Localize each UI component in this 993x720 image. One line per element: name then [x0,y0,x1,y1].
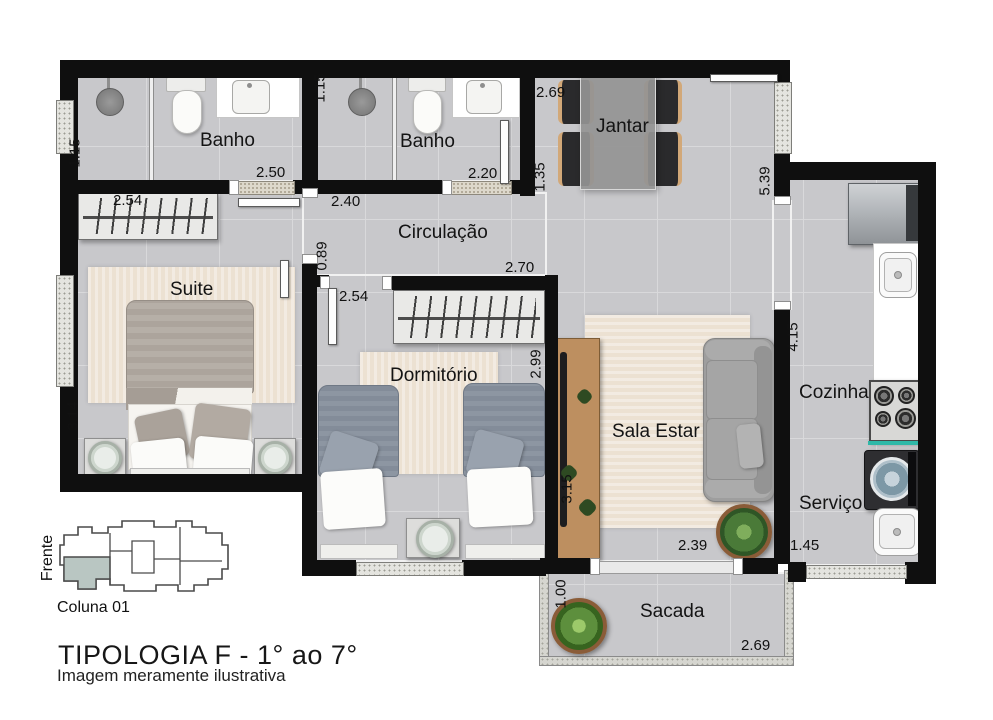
suite-closet-hangers [78,192,218,240]
room-label-servico: Serviço [799,493,862,515]
suite-clock-left [88,441,122,475]
sofa-lumbar-pillow [736,423,764,469]
window-jantar-right [774,82,792,154]
room-label-jantar: Jantar [596,116,649,138]
room-label-banho2: Banho [400,131,455,153]
door-leaf-suite [280,260,289,298]
door-leaf-banho1 [238,198,300,207]
wall-suite-dorm-divider [302,262,317,576]
wall-dorm-bottom-a [302,560,356,576]
jamb-dorm-door-right [382,276,392,290]
room-label-circulacao: Circulação [398,222,488,244]
keyplan-building-outline [58,517,230,601]
dorm-bed-left-base [320,544,398,559]
sacada-wall-bottom [539,656,794,666]
dim-suite-depth: 3.14 [65,401,82,430]
window-dorm-bottom [356,562,464,576]
jamb-sacada-door-right [733,558,743,575]
dim-sacada-depth: 1.00 [553,579,570,608]
stove-burner-3 [875,411,891,427]
dorm-bed-left-pillow-white [320,468,386,530]
suite-clock-right [258,441,292,475]
window-suite-left [56,275,74,387]
wall-kitchen-top [774,162,936,180]
shower-screen-2 [392,78,397,180]
sala-plant [716,504,772,560]
vanity-faucet-1 [247,83,252,88]
wall-suite-bottom [60,474,317,492]
jamb-banho2-left [442,180,452,195]
dim-suite-closet: 2.54 [113,192,142,209]
door-leaf-banho2 [500,120,509,184]
keyplan-column-label: Coluna 01 [57,599,130,617]
jamb-sacada-door-left [590,558,600,575]
sacada-wall-right [784,570,794,664]
room-label-sala-estar: Sala Estar [612,421,700,443]
dim-banho1-width: 2.50 [256,164,285,181]
stove-burner-1 [874,386,894,406]
dim-dorm-width: 2.70 [505,259,534,276]
shower-head-2 [348,88,376,116]
laundry-tank-drain [893,528,901,536]
wall-servico-bottom-a [788,562,806,582]
stove-burner-4 [895,408,916,429]
dim-sala-rack: 3.15 [559,474,576,503]
sacada-glass-door [598,561,735,574]
counter-accent-strip [868,441,920,445]
room-label-banho1: Banho [200,130,255,152]
dorm-bed-right-base [465,544,545,559]
keyplan-highlight-unit [64,557,110,589]
wall-banho1-bottom-a [60,180,238,194]
dim-jantar-depth: 1.35 [532,162,549,191]
wall-banho2-bottom-a [318,180,451,194]
shower-head-1 [96,88,124,116]
dorm-bed-right-pillow-white [467,466,534,527]
suite-bed-duvet [126,300,254,394]
toilet-bowl-2 [413,90,442,134]
room-label-sacada: Sacada [640,601,704,623]
wall-dorm-bottom-b [462,560,546,576]
dim-banho2-depth: 1.15 [312,73,329,102]
dorm-clock [416,520,454,558]
sofa-seat-1 [706,360,758,420]
room-label-dormitorio: Dormitório [390,365,478,387]
dim-cozinha-depth: 4.15 [785,322,802,351]
washing-machine-panel [908,452,916,506]
dim-dorm-closet: 2.54 [339,288,368,305]
jamb-banho1-left [229,180,239,195]
wall-dorm-sala-divider [545,275,558,564]
threshold-banho1-door [238,181,295,195]
wall-top [60,60,790,78]
wall-dorm-top [390,276,547,290]
fridge-handle-strip [906,185,918,241]
dorm-closet-hangers [393,290,545,344]
jamb-kitchen-passage-top [774,196,791,205]
dim-suite-door: 0.89 [314,241,331,270]
jamb-kitchen-passage-bottom [774,301,791,310]
kitchen-sink-drain [894,271,902,279]
dim-banho2-width: 2.20 [468,165,497,182]
toilet-bowl-1 [172,90,202,134]
wall-kitchen-right [918,162,936,584]
keyplan-front-label: Frente [39,535,57,581]
dim-servico-width: 1.45 [790,537,819,554]
door-leaf-dormitorio [328,288,337,345]
vanity-faucet-2 [480,83,485,88]
dim-kitchen-wall: 5.39 [757,166,774,195]
room-label-cozinha: Cozinha [799,382,869,404]
dim-sacada-width: 2.69 [741,637,770,654]
jamb-suite-entry-top [302,188,318,198]
wall-servico-bottom-b [905,562,936,584]
door-leaf-servico-top [710,74,778,82]
dim-circulacao-width: 2.40 [331,193,360,210]
dim-jantar-width: 2.69 [536,84,565,101]
dim-dorm-depth: 2.99 [528,349,545,378]
window-servico-bottom [806,565,907,579]
plan-subtitle: Imagem meramente ilustrativa [57,666,286,686]
dim-sala-width: 2.39 [678,537,707,554]
dim-banho1-depth: 1.15 [67,138,84,167]
floor-kitchen-passage [774,202,790,308]
shower-screen-1 [149,78,154,180]
stove-burner-2 [898,387,915,404]
sacada-wall-left [539,570,549,664]
room-label-suite: Suite [170,279,213,301]
